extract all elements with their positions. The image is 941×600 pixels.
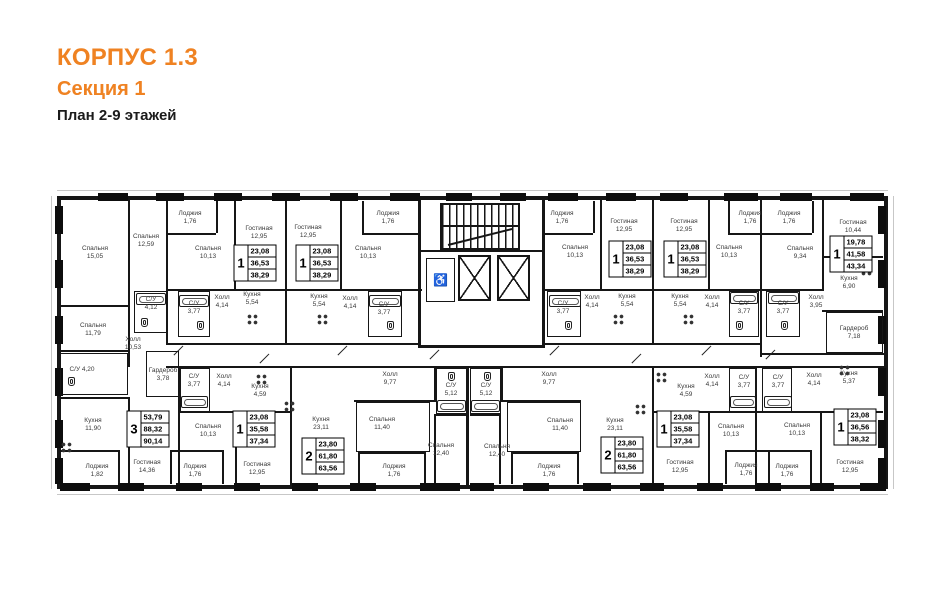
apartment-living-area: 23,08 (849, 410, 876, 422)
wall (362, 201, 364, 233)
room-label: Лоджия1,76 (376, 210, 399, 226)
room-name: Спальня (195, 423, 221, 431)
room-area: 10,44 (839, 227, 866, 235)
wall-pier (878, 420, 886, 448)
wall-pier (330, 193, 358, 201)
room-label: Лоджия1,76 (550, 210, 573, 226)
wall-pier (780, 193, 812, 201)
room-name: Лоджия (734, 462, 757, 470)
room-label: Гостиная12,95 (666, 459, 693, 475)
room-area: 12,95 (610, 226, 637, 234)
wall-pier (98, 193, 128, 201)
room-name: С/У (772, 374, 785, 382)
apartment-living-area: 23,08 (624, 242, 651, 254)
room-name: Спальня (787, 245, 813, 253)
room-area: 3,78 (149, 375, 178, 383)
room-label: С/У5,12 (480, 382, 493, 398)
room-area: 4,14 (704, 302, 719, 310)
door-swing (259, 354, 269, 364)
wall (418, 200, 421, 348)
apartment-info-badge: 223,8061,8063,56 (302, 438, 345, 475)
room-area: 10,13 (718, 431, 744, 439)
wall-pier (878, 206, 886, 234)
apartment-area: 61,80 (616, 450, 643, 462)
apartment-total-area: 38,29 (679, 266, 706, 277)
wall-pier (860, 483, 886, 491)
room-label: Спальня10,13 (195, 245, 221, 261)
apartment-room-count: 1 (235, 246, 249, 281)
bathtub-icon (764, 396, 792, 408)
apartment-info-badge: 123,0836,5338,29 (609, 241, 652, 278)
room-area: 1,82 (85, 471, 108, 479)
room-name: Спальня (718, 423, 744, 431)
room-area: 5,12 (480, 390, 493, 398)
apartment-areas: 23,0836,5338,29 (311, 246, 338, 281)
glazing-line (57, 494, 888, 495)
wall (57, 350, 128, 352)
room-label: Гардероб3,78 (149, 367, 178, 383)
room-name: Кухня (312, 416, 329, 424)
room-area: 1,76 (183, 471, 206, 479)
room-area: 4,14 (584, 302, 599, 310)
wall (577, 452, 579, 484)
room-label: Спальня10,13 (195, 423, 221, 439)
room-label: Гостиная12,95 (243, 461, 270, 477)
room-name: Холл (125, 336, 141, 344)
room-name: С/У (777, 300, 790, 308)
room-area: 10,13 (784, 430, 810, 438)
apartment-room-count: 1 (665, 242, 679, 277)
wall (545, 233, 593, 235)
room-name: Спальня (195, 245, 221, 253)
room-name: Кухня (671, 293, 688, 301)
wall (708, 411, 710, 485)
apartment-info-badge: 123,0836,5338,29 (234, 245, 277, 282)
wall (728, 233, 812, 235)
room-label: С/У3,77 (557, 300, 570, 316)
room-label: Спальня15,05 (82, 245, 108, 261)
apartment-areas: 23,0836,5338,29 (624, 242, 651, 277)
wall-pier (500, 193, 526, 201)
room-name: Гостиная (836, 459, 863, 467)
room-name-area: С/У 4,20 (69, 366, 94, 373)
room-area: 3,77 (738, 382, 751, 390)
room-label: Холл9,77 (382, 371, 397, 387)
room-area: 12,95 (836, 467, 863, 475)
apartment-room-count: 1 (835, 410, 849, 445)
apartment-living-area: 23,80 (317, 439, 344, 451)
apartment-info-badge: 123,0836,5638,32 (834, 409, 877, 446)
room-label: Гостиная10,44 (839, 219, 866, 235)
room-name: Гостиная (670, 218, 697, 226)
room-name: Кухня (310, 293, 327, 301)
wall (542, 200, 545, 348)
room-label: Спальня11,79 (80, 322, 106, 338)
apartment-info-badge: 353,7988,3290,14 (127, 411, 170, 448)
apartment-total-area: 90,14 (142, 436, 169, 447)
room-name: Холл (808, 294, 823, 302)
room-area: 3,77 (557, 308, 570, 316)
apartment-area: 36,53 (679, 254, 706, 266)
wall-pier (606, 193, 636, 201)
wall-pier (446, 193, 472, 201)
room-area: 23,11 (312, 424, 329, 432)
apartment-room-count: 1 (297, 246, 311, 281)
toilet-icon (565, 321, 572, 330)
stove-icon (682, 313, 695, 326)
room-area: 3,77 (188, 381, 201, 389)
room-label: С/У3,77 (188, 373, 201, 389)
wall-pier (55, 316, 63, 344)
room-name: Кухня (677, 383, 694, 391)
room-area: 1,76 (738, 218, 761, 226)
apartment-info-badge: 123,0836,5338,29 (664, 241, 707, 278)
room-label: Спальня12,40 (484, 443, 510, 459)
room-area: 10,13 (562, 252, 588, 260)
room-label: Кухня5,54 (310, 293, 327, 309)
apartment-total-area: 38,32 (849, 434, 876, 445)
wall (290, 368, 292, 485)
room-name: Спальня (484, 443, 510, 451)
apartment-room-count: 1 (610, 242, 624, 277)
apartment-areas: 23,8061,8063,56 (317, 439, 344, 474)
wall (812, 201, 814, 233)
room-area: 10,13 (195, 253, 221, 261)
room-area: 23,11 (606, 425, 623, 433)
room-label: Гостиная12,95 (836, 459, 863, 475)
bathtub-icon (437, 400, 466, 412)
apartment-living-area: 23,08 (679, 242, 706, 254)
apartment-area: 36,53 (311, 258, 338, 270)
wall-pier (214, 193, 242, 201)
room-name: Лоджия (775, 463, 798, 471)
room-name: Спальня (716, 244, 742, 252)
stove-icon (246, 313, 259, 326)
apartment-total-area: 38,29 (311, 270, 338, 281)
stove-icon (655, 371, 668, 384)
room-area: 4,14 (342, 303, 357, 311)
apartment-living-area: 23,08 (672, 412, 699, 424)
room-area: 10,13 (355, 253, 381, 261)
floor-plan-page: { "header": { "building": "КОРПУС 1.3", … (0, 0, 941, 600)
room-area: 5,12 (445, 390, 458, 398)
apartment-living-area: 53,79 (142, 412, 169, 424)
wall (418, 250, 545, 252)
room-name: Холл (806, 372, 821, 380)
wall-pier (234, 483, 260, 491)
room-area: 4,14 (806, 380, 821, 388)
apartment-area: 36,53 (249, 258, 276, 270)
elevator-icon (458, 255, 491, 301)
room-name: Кухня (251, 383, 268, 391)
room-area: 4,14 (214, 302, 229, 310)
room-label: Лоджия1,76 (734, 462, 757, 478)
room-name: Холл (704, 373, 719, 381)
apartment-areas: 23,0835,5837,34 (672, 412, 699, 447)
apartment-info-badge: 123,0836,5338,29 (296, 245, 339, 282)
room-label: Лоджия1,82 (85, 463, 108, 479)
room-area: 5,54 (618, 301, 635, 309)
room-name: С/У (378, 301, 391, 309)
room-area: 10,13 (195, 431, 221, 439)
toilet-icon (448, 372, 455, 381)
room-area: 4,14 (704, 381, 719, 389)
apartment-areas: 23,0835,5837,34 (248, 412, 275, 447)
room-name: Спальня (82, 245, 108, 253)
room-area: 3,77 (777, 308, 790, 316)
apartment-total-area: 37,34 (248, 436, 275, 447)
apartment-living-area: 19,78 (845, 237, 872, 249)
apartment-areas: 23,8061,8063,56 (616, 438, 643, 473)
room-label: Кухня23,11 (312, 416, 329, 432)
room-name: Лоджия (178, 210, 201, 218)
toilet-icon (484, 372, 491, 381)
wall (118, 450, 120, 484)
wall-pier (878, 260, 886, 288)
wall (822, 200, 824, 291)
room-label: Спальня10,13 (718, 423, 744, 439)
apartment-area: 61,80 (317, 451, 344, 463)
room-area: 1,76 (382, 471, 405, 479)
room-name: С/У (188, 300, 201, 308)
door-swing (631, 354, 641, 364)
room-name: Лоджия (550, 210, 573, 218)
stove-icon (634, 403, 647, 416)
apartment-total-area: 38,29 (249, 270, 276, 281)
apartment-total-area: 63,56 (317, 463, 344, 474)
wall-pier (176, 483, 202, 491)
room-name: Холл (214, 294, 229, 302)
room-label: Гардероб7,18 (840, 325, 869, 341)
apartment-areas: 53,7988,3290,14 (142, 412, 169, 447)
wall-pier (156, 193, 184, 201)
wall-pier (755, 483, 781, 491)
room-name: Лоджия (376, 210, 399, 218)
room-name: Гостиная (666, 459, 693, 467)
wall (652, 200, 654, 345)
room-label: Холл10,53 (125, 336, 141, 352)
room-area: 4,12 (145, 304, 158, 312)
room-area: 12,95 (666, 467, 693, 475)
glazing-line (893, 196, 894, 489)
room-name: С/У (738, 300, 751, 308)
room-label: Кухня5,54 (618, 293, 635, 309)
room-name: Кухня (618, 293, 635, 301)
wall (652, 368, 654, 485)
wall-pier (878, 368, 886, 396)
room-area: 6,90 (840, 283, 857, 291)
apartment-living-area: 23,80 (616, 438, 643, 450)
room-label: Кухня4,59 (251, 383, 268, 399)
room-area: 9,77 (541, 379, 556, 387)
wall-pier (583, 483, 611, 491)
room-label: Лоджия1,76 (738, 210, 761, 226)
room-area: 1,76 (734, 470, 757, 478)
room-label: Кухня4,59 (677, 383, 694, 399)
toilet-icon (68, 377, 75, 386)
room-name: Лоджия (85, 463, 108, 471)
room-name: С/У (445, 382, 458, 390)
room-name: Холл (541, 371, 556, 379)
room-area: 5,37 (840, 378, 857, 386)
wall-pier (55, 206, 63, 234)
room-area: 3,77 (772, 382, 785, 390)
room-name: Лоджия (382, 463, 405, 471)
wall (340, 200, 342, 291)
wall (358, 452, 426, 454)
apartment-areas: 23,0836,5638,32 (849, 410, 876, 445)
room-area: 11,90 (84, 425, 101, 433)
toilet-icon (387, 321, 394, 330)
room-name: Холл (584, 294, 599, 302)
wall-pier (350, 483, 376, 491)
room-name: Спальня (784, 422, 810, 430)
toilet-icon (736, 321, 743, 330)
apartment-total-area: 37,34 (672, 436, 699, 447)
room-label: Гостиная12,95 (294, 224, 321, 240)
room-label: С/У3,77 (188, 300, 201, 316)
wall (436, 414, 467, 416)
room-label: Спальня11,40 (369, 416, 395, 432)
room-label: Кухня6,90 (840, 275, 857, 291)
room-name: Кухня (84, 417, 101, 425)
elevator-icon (497, 255, 530, 301)
apartment-room-count: 2 (303, 439, 317, 474)
room-name: Спальня (80, 322, 106, 330)
wall (418, 345, 545, 348)
room-area: 10,13 (716, 252, 742, 260)
room-area: 1,76 (537, 471, 560, 479)
room-label: Кухня5,54 (243, 291, 260, 307)
room-name: Кухня (243, 291, 260, 299)
room-label: Холл4,14 (216, 373, 231, 389)
room-area: 12,95 (670, 226, 697, 234)
room-name: Спальня (562, 244, 588, 252)
toilet-icon (197, 321, 204, 330)
wall (128, 200, 130, 307)
apartment-total-area: 43,34 (845, 261, 872, 272)
bathtub-icon (730, 396, 756, 408)
wall (708, 200, 710, 291)
wall (358, 452, 360, 484)
wall-pier (640, 483, 664, 491)
room-label: Холл4,14 (806, 372, 821, 388)
room-label: Спальня10,13 (355, 245, 381, 261)
apartment-info-badge: 123,0835,5837,34 (233, 411, 276, 448)
room-area: 11,79 (80, 330, 106, 338)
room-label: Холл4,14 (704, 294, 719, 310)
room-area: 9,34 (787, 253, 813, 261)
room-label: Лоджия1,76 (775, 463, 798, 479)
room-label: Спальня10,13 (784, 422, 810, 438)
room-label: Холл4,14 (584, 294, 599, 310)
room-label: С/У3,77 (738, 300, 751, 316)
room-label: Спальня12,40 (428, 442, 454, 458)
stove-icon (612, 313, 625, 326)
room-area: 1,76 (550, 218, 573, 226)
room-label: С/У3,77 (772, 374, 785, 390)
wall (820, 411, 822, 485)
room-label: Гостиная12,95 (610, 218, 637, 234)
room-area: 10,53 (125, 344, 141, 352)
wall (725, 450, 727, 484)
room-name: Гостиная (839, 219, 866, 227)
room-name: Спальня (369, 416, 395, 424)
room-area: 12,40 (484, 451, 510, 459)
room-area: 1,76 (777, 218, 800, 226)
wall (470, 414, 501, 416)
door-swing (429, 350, 439, 360)
room-name: Кухня (606, 417, 623, 425)
wall-pier (60, 483, 90, 491)
apartment-area: 36,56 (849, 422, 876, 434)
apartment-room-count: 3 (128, 412, 142, 447)
wall (728, 201, 730, 233)
room-area: 15,05 (82, 253, 108, 261)
room-area: 9,77 (382, 379, 397, 387)
wall (762, 353, 884, 355)
wall (57, 305, 128, 307)
room-name: С/У (480, 382, 493, 390)
room-area: 5,54 (671, 301, 688, 309)
room-area: 12,59 (133, 241, 159, 249)
room-name: Холл (342, 295, 357, 303)
apartment-room-count: 1 (234, 412, 248, 447)
room-label: Лоджия1,76 (178, 210, 201, 226)
room-area: 1,76 (178, 218, 201, 226)
room-area: 3,77 (378, 309, 391, 317)
room-label: Кухня5,37 (840, 370, 857, 386)
wall-pier (55, 260, 63, 288)
wall-pier (292, 483, 318, 491)
wall (166, 233, 216, 235)
room-area: 11,40 (369, 424, 395, 432)
wall-pier (55, 458, 63, 484)
apartment-info-badge: 123,0835,5837,34 (657, 411, 700, 448)
wall (810, 450, 812, 484)
wheelchair-icon: ♿ (426, 258, 455, 302)
apartment-total-area: 63,56 (616, 462, 643, 473)
staircase-icon (440, 203, 520, 250)
room-area: 4,59 (251, 391, 268, 399)
room-name: Кухня (840, 275, 857, 283)
apartment-room-count: 2 (602, 438, 616, 473)
stove-icon (316, 313, 329, 326)
apartment-areas: 23,0836,5338,29 (249, 246, 276, 281)
room-name: Лоджия (738, 210, 761, 218)
room-name: Гостиная (245, 225, 272, 233)
wall-pier (390, 193, 420, 201)
room-name: Гостиная (243, 461, 270, 469)
room-label: Кухня11,90 (84, 417, 101, 433)
room-name: Гостиная (610, 218, 637, 226)
room-name: Кухня (840, 370, 857, 378)
apartment-area: 41,58 (845, 249, 872, 261)
wall-pier (724, 193, 758, 201)
apartment-areas: 19,7841,5843,34 (845, 237, 872, 272)
room-name: Спальня (547, 417, 573, 425)
room-label: С/У5,12 (445, 382, 458, 398)
room-label: С/У3,77 (777, 300, 790, 316)
apartment-area: 88,32 (142, 424, 169, 436)
room-name: Спальня (133, 233, 159, 241)
wall (424, 452, 426, 484)
wall-pier (810, 483, 834, 491)
apartment-info-badge: 119,7841,5843,34 (830, 236, 873, 273)
wall-pier (548, 193, 578, 201)
wall (166, 343, 420, 345)
wall (362, 233, 420, 235)
